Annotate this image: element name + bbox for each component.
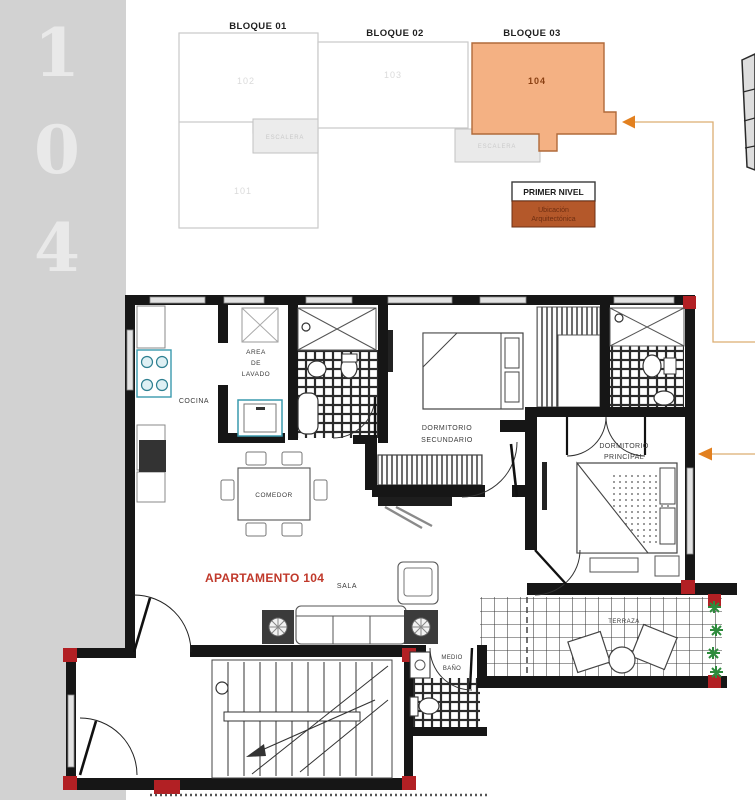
label-dorm2-line2: SECUNDARIO xyxy=(421,437,473,444)
side-table-plant xyxy=(404,610,438,644)
legend: PRIMER NIVEL Ubicación Arquitectónica xyxy=(512,182,595,227)
kitchen-cabinet xyxy=(137,472,165,502)
label-bano: BAÑO xyxy=(443,665,461,672)
label-cocina: COCINA xyxy=(179,398,209,405)
unit-number-vertical: 1 0 4 xyxy=(34,14,80,287)
unit-101-label: 101 xyxy=(234,186,252,196)
kitchen-sink-corner xyxy=(139,440,166,472)
side-table-plant xyxy=(262,610,294,644)
key-plan-block1: ESCALERA 102 101 xyxy=(179,33,318,228)
pillow xyxy=(505,338,519,368)
unit-103-label: 103 xyxy=(384,70,402,80)
legend-sub2: Arquitectónica xyxy=(531,216,575,223)
floorplan-drawing: 1 0 4 BLOQUE 01 BLOQUE 02 BLOQUE 03 ESCA… xyxy=(0,0,755,800)
block3-label: BLOQUE 03 xyxy=(503,28,560,39)
stair1-label: ESCALERA xyxy=(266,135,304,141)
label-dorm1-line2: PRINCIPAL xyxy=(604,454,644,461)
label-dorm2-line1: DORMITORIO xyxy=(422,425,472,432)
label-sala: SALA xyxy=(337,583,357,590)
toilet1-tank xyxy=(342,354,357,362)
sink1 xyxy=(308,361,326,377)
sofa xyxy=(296,606,406,644)
stair-rail xyxy=(224,712,360,721)
stair-post xyxy=(216,682,228,694)
bath2-tiles xyxy=(608,346,684,417)
bathtub1 xyxy=(298,393,318,434)
sink2 xyxy=(654,391,674,405)
label-comedor: COMEDOR xyxy=(255,492,292,499)
stairwell xyxy=(212,660,392,778)
walkin-closet xyxy=(537,307,600,407)
pillow xyxy=(505,372,519,402)
label-dorm1-line1: DORMITORIO xyxy=(599,443,649,450)
washer xyxy=(238,400,282,436)
tv-sala xyxy=(378,497,452,506)
legend-sub1: Ubicación xyxy=(538,207,569,214)
pillow xyxy=(660,468,675,504)
unit-digit-4: 4 xyxy=(34,209,80,287)
unit-digit-0: 0 xyxy=(34,111,80,189)
legend-title: PRIMER NIVEL xyxy=(523,187,583,197)
tv-bedroom1 xyxy=(542,462,547,510)
architectural-sheet: 1 0 4 BLOQUE 01 BLOQUE 02 BLOQUE 03 ESCA… xyxy=(0,0,755,800)
toilet2-tank xyxy=(664,358,676,374)
label-terraza: TERRAZA xyxy=(608,619,640,625)
stove xyxy=(137,350,171,397)
label-medio: MEDIO xyxy=(441,655,462,661)
unit-102-label: 102 xyxy=(237,76,255,86)
tv-bedroom2 xyxy=(388,330,393,372)
toilet2 xyxy=(643,355,661,377)
unit-104-label: 104 xyxy=(528,76,546,86)
nightstand xyxy=(655,556,679,576)
shower-head-icon xyxy=(302,323,310,331)
apartment-title: APARTAMENTO 104 xyxy=(205,571,324,585)
label-area: AREA xyxy=(246,349,266,356)
block1-label: BLOQUE 01 xyxy=(229,21,287,32)
pillow xyxy=(660,508,675,544)
halfbath-toilet-tank xyxy=(410,697,418,716)
legend-sub-box xyxy=(512,201,595,227)
block2-label: BLOQUE 02 xyxy=(366,28,423,39)
bed-bench xyxy=(590,558,638,572)
shower-head-icon xyxy=(615,314,623,322)
stair2-label: ESCALERA xyxy=(478,144,516,150)
label-lavado: LAVADO xyxy=(242,371,270,378)
bedroom2-closet xyxy=(378,455,482,485)
terrace-table xyxy=(609,647,635,673)
kitchen-counter xyxy=(137,306,165,348)
label-de: DE xyxy=(251,360,261,367)
halfbath-toilet xyxy=(419,698,439,714)
unit-digit-1: 1 xyxy=(34,14,80,92)
